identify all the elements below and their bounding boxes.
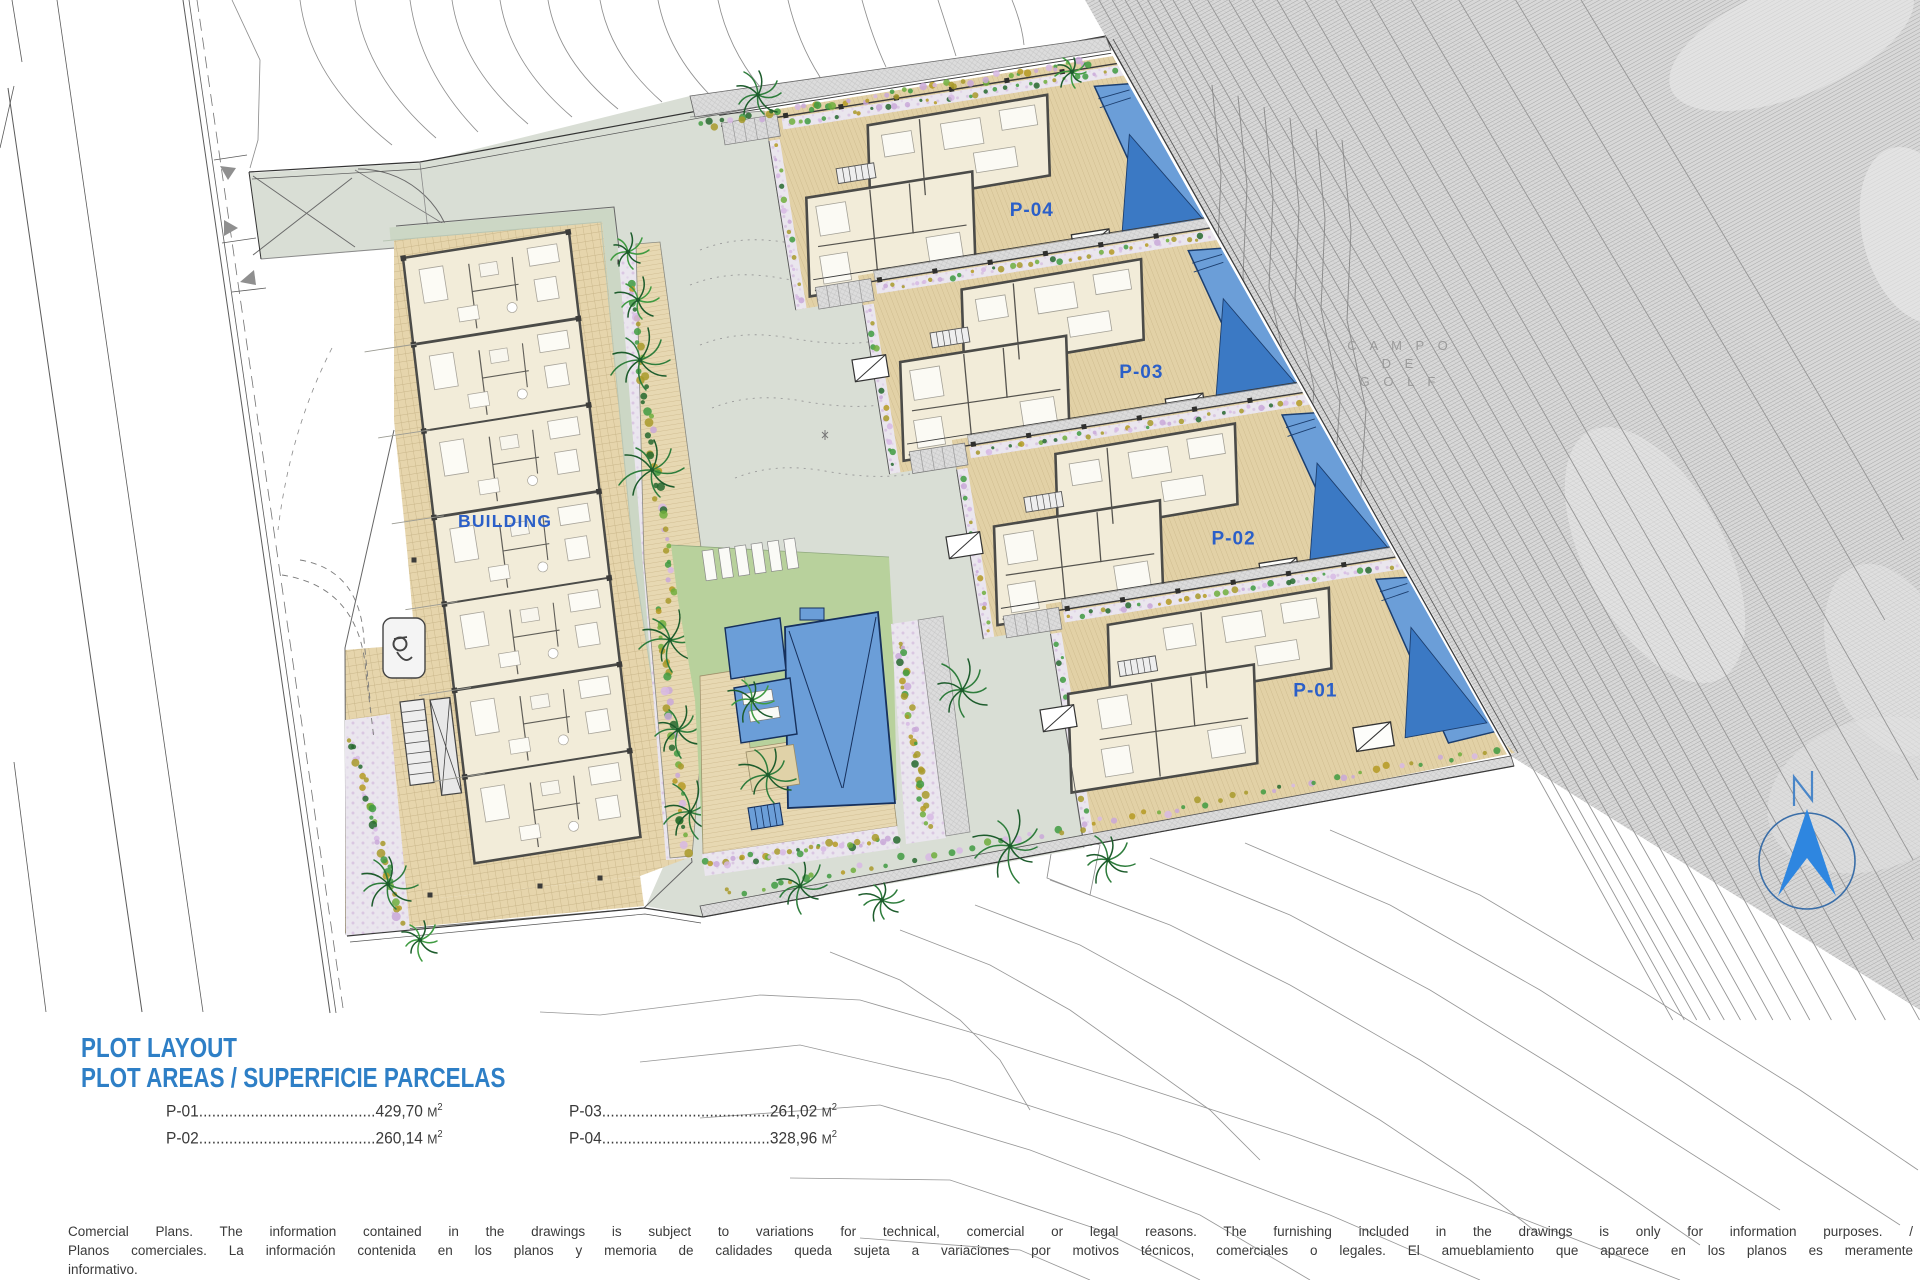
svg-text:P-01: P-01: [1293, 681, 1337, 702]
svg-text:BUILDING: BUILDING: [458, 511, 552, 531]
svg-text:P-03: P-03: [1119, 362, 1163, 383]
svg-text:G O L F: G O L F: [1360, 374, 1441, 389]
svg-text:C A M P O: C A M P O: [1347, 338, 1452, 353]
svg-text:P-04: P-04: [1010, 200, 1054, 221]
svg-text:D E: D E: [1382, 356, 1419, 371]
svg-text:P-02: P-02: [1212, 529, 1256, 550]
